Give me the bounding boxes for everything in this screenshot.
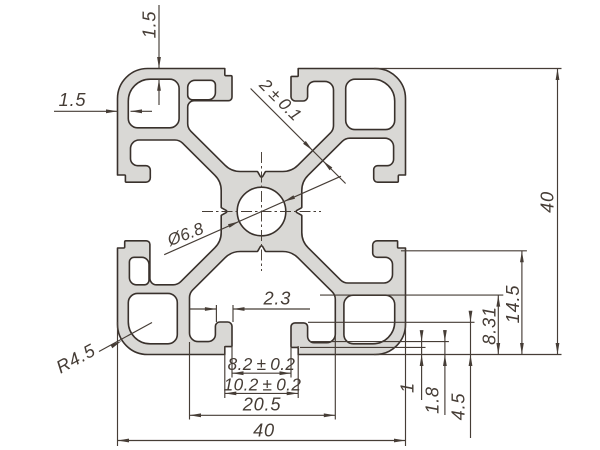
svg-text:8.31: 8.31 — [480, 306, 500, 345]
svg-text:1.5: 1.5 — [59, 90, 87, 110]
svg-text:R4.5: R4.5 — [53, 340, 99, 377]
svg-text:40: 40 — [538, 191, 558, 213]
svg-text:40: 40 — [253, 421, 275, 441]
svg-text:1.5: 1.5 — [140, 11, 160, 39]
svg-text:10.2 ± 0.2: 10.2 ± 0.2 — [224, 374, 302, 394]
svg-text:1.8: 1.8 — [423, 386, 443, 414]
svg-text:8.2 ± 0.2: 8.2 ± 0.2 — [228, 354, 296, 374]
svg-text:20.5: 20.5 — [242, 395, 282, 415]
svg-text:14.5: 14.5 — [503, 285, 523, 324]
svg-text:2.3: 2.3 — [262, 289, 291, 309]
svg-text:4.5: 4.5 — [449, 393, 469, 421]
svg-text:1: 1 — [398, 382, 418, 393]
